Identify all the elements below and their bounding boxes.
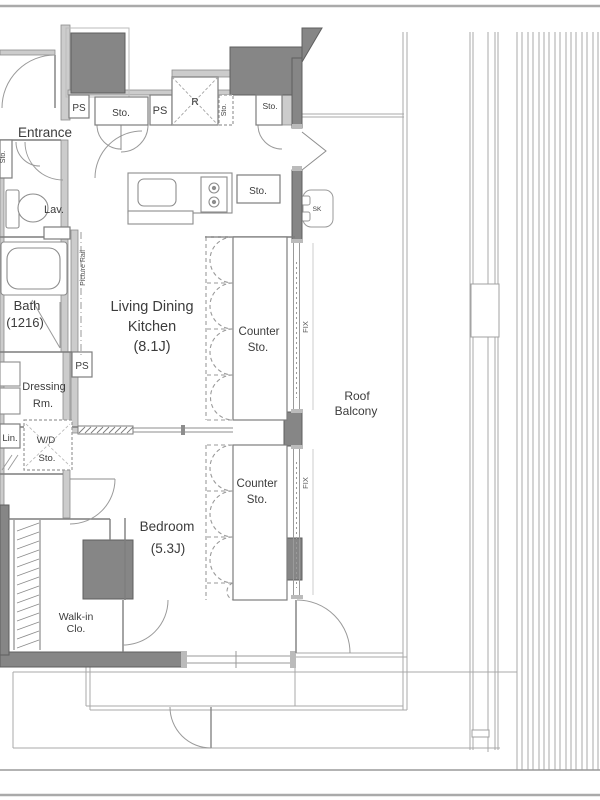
kitchen-counter-return bbox=[128, 211, 193, 224]
label-ps-kitchen: PS bbox=[153, 105, 168, 117]
room-label-roof-balcony-1: Roof bbox=[344, 389, 370, 403]
floor-plan-page: Entrance PS Sto. PS R Sto. Sto. Sto. Lav… bbox=[0, 0, 600, 800]
bathtub bbox=[1, 242, 67, 295]
entrance-door bbox=[2, 55, 55, 108]
room-label-ldk-1: Living Dining bbox=[110, 299, 193, 315]
accordion-door-upper bbox=[206, 237, 233, 420]
kitchen-stove bbox=[201, 177, 227, 212]
shoe-closet-door-arc bbox=[16, 142, 40, 166]
room-label-bedroom-1: Bedroom bbox=[140, 519, 195, 534]
kitchen-sink bbox=[138, 179, 176, 206]
wall-sto2-east bbox=[282, 95, 292, 125]
room-label-bath-size: (1216) bbox=[6, 315, 44, 330]
room-label-walkin-2: Clo. bbox=[67, 623, 86, 635]
label-fix-upper: FIX bbox=[301, 321, 310, 333]
fixtures bbox=[0, 173, 232, 414]
wall-top-west bbox=[0, 50, 55, 55]
toilet bbox=[6, 190, 48, 228]
label-lin: Lin. bbox=[2, 433, 17, 444]
label-counter-sto-upper-1: Counter bbox=[239, 326, 280, 338]
vanity-basin bbox=[0, 362, 20, 414]
bedroom-balcony-door bbox=[296, 600, 350, 653]
room-label-walkin-1: Walk-in bbox=[59, 611, 94, 623]
label-sto-shoe: Sto. bbox=[0, 151, 7, 164]
wall-left-column bbox=[0, 140, 4, 505]
label-ps-bath: PS bbox=[75, 361, 89, 372]
pillar-northeast-angle bbox=[302, 28, 322, 62]
room-label-dressing-2: Rm. bbox=[33, 398, 53, 410]
label-wd-2: Sto. bbox=[39, 453, 56, 464]
wall-ldk-west bbox=[71, 230, 78, 433]
kitchen-counter bbox=[128, 173, 232, 224]
label-sto-hall: Sto. bbox=[112, 108, 130, 119]
pillar-northwest bbox=[71, 33, 125, 93]
room-label-roof-balcony-2: Balcony bbox=[335, 404, 378, 418]
balcony-partition-top bbox=[302, 114, 404, 117]
bedroom-south-window bbox=[181, 651, 296, 668]
wall-ldk-bedroom-divider bbox=[78, 425, 233, 435]
lower-balcony-door bbox=[170, 707, 211, 748]
label-sto-upper-right: Sto. bbox=[262, 101, 277, 111]
counter-sto-lower-box bbox=[233, 445, 287, 600]
room-label-entrance: Entrance bbox=[18, 125, 72, 140]
wall-above-r bbox=[172, 70, 230, 77]
label-sto-strip: Sto. bbox=[221, 104, 228, 117]
room-label-ldk-2: Kitchen bbox=[128, 319, 176, 335]
accordion-door-lower bbox=[206, 445, 233, 600]
label-refrigerator: R bbox=[191, 97, 198, 108]
room-label-ldk-3: (8.1J) bbox=[133, 339, 170, 355]
label-sto-kitchen: Sto. bbox=[249, 186, 267, 197]
storage-double-doors bbox=[97, 125, 148, 152]
room-label-bedroom-2: (5.3J) bbox=[151, 541, 186, 556]
balcony-rail-lines bbox=[470, 32, 498, 752]
wall-south-dark bbox=[0, 652, 183, 667]
label-wd-1: W/D bbox=[37, 435, 56, 446]
bedroom-entry-door bbox=[70, 479, 115, 524]
label-counter-sto-lower-1: Counter bbox=[237, 478, 278, 490]
walkin-closet-door bbox=[123, 600, 168, 645]
room-label-bath: Bath bbox=[14, 298, 41, 313]
wall-east-seg2 bbox=[292, 170, 302, 242]
pillar-northeast bbox=[230, 47, 302, 95]
wall-west-dark bbox=[0, 505, 9, 655]
hall-ldk-door-arc bbox=[95, 131, 142, 178]
label-sk: SK bbox=[313, 206, 322, 213]
label-fix-lower: FIX bbox=[301, 477, 310, 489]
rail-post-cap bbox=[472, 730, 489, 737]
floor-plan-drawing: Entrance PS Sto. PS R Sto. Sto. Sto. Lav… bbox=[0, 0, 600, 800]
deck-louver-lines bbox=[517, 32, 598, 770]
lav-cabinet bbox=[44, 227, 70, 239]
room-label-dressing-1: Dressing bbox=[22, 381, 65, 393]
walkin-hanger-rail bbox=[14, 520, 40, 650]
label-picture-rail: Picture Rail bbox=[80, 250, 87, 286]
label-ps-entrance: PS bbox=[72, 103, 86, 114]
kitchen-balcony-door bbox=[302, 132, 326, 170]
label-counter-sto-upper-2: Sto. bbox=[248, 342, 268, 354]
room-label-lav: Lav. bbox=[44, 204, 64, 216]
wall-east-seg1 bbox=[292, 58, 302, 128]
lav-door-arc bbox=[25, 142, 63, 180]
label-counter-sto-lower-2: Sto. bbox=[247, 494, 267, 506]
sto-upper-right-door-arc bbox=[258, 125, 282, 149]
rail-junction-box bbox=[471, 284, 499, 337]
